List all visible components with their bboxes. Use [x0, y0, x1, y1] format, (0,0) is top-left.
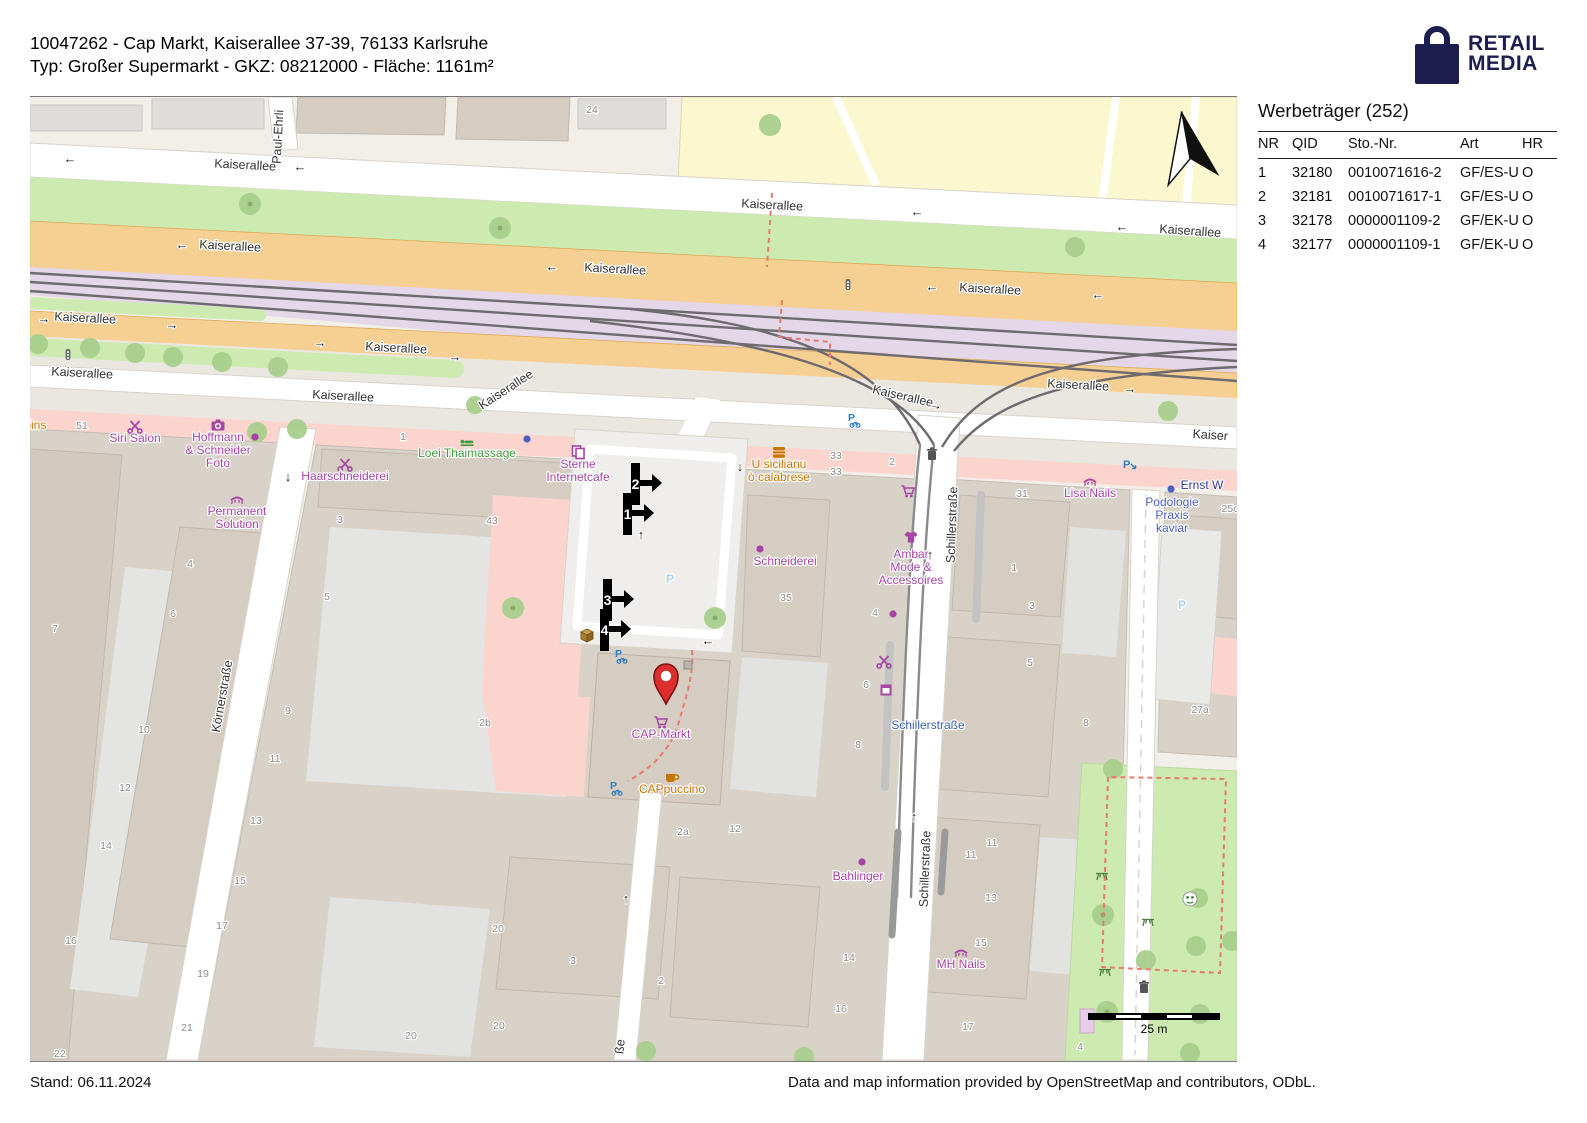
- cell-qid: 32178: [1292, 207, 1348, 231]
- direction-arrow: ←: [926, 279, 939, 294]
- house-number: 33: [830, 450, 842, 462]
- report-page: 10047262 - Cap Markt, Kaiserallee 37-39,…: [0, 0, 1587, 1123]
- cell-art: GF/ES-U: [1460, 183, 1522, 207]
- house-number: 11: [987, 837, 998, 849]
- cell-nr: 4: [1258, 231, 1292, 255]
- trash-icon: [1139, 980, 1149, 993]
- play-icon: [1183, 892, 1197, 906]
- direction-arrow: ↓: [285, 469, 292, 484]
- scale-label: 25 m: [1141, 1022, 1168, 1036]
- cell-art: GF/ES-U: [1460, 159, 1522, 184]
- house-number: 12: [729, 823, 741, 835]
- stand-date: Stand: 06.11.2024: [30, 1074, 152, 1091]
- col-hr: HR: [1522, 132, 1557, 159]
- house-number: 16: [65, 935, 77, 947]
- logo-text: RETAIL MEDIA: [1468, 34, 1545, 74]
- house-number: 17: [962, 1021, 974, 1033]
- house-number: 16: [835, 1003, 847, 1015]
- col-nr: NR: [1258, 132, 1292, 159]
- dot-icon: [523, 435, 530, 442]
- marker-number: 3: [604, 592, 612, 608]
- cell-art: GF/EK-U: [1460, 207, 1522, 231]
- panel-title: Werbeträger (252): [1258, 100, 1557, 122]
- direction-arrow: ↑: [638, 527, 645, 542]
- house-number: 24: [586, 104, 598, 116]
- table-row: 2 32181 0010071617-1 GF/ES-U O: [1258, 183, 1557, 207]
- house-number: 6: [863, 679, 869, 691]
- cell-hr: O: [1522, 183, 1557, 207]
- street-label: ße: [612, 1039, 627, 1055]
- direction-arrow: ↑: [623, 891, 630, 906]
- path-gate-marker: [684, 661, 692, 669]
- house-number: 20: [405, 1030, 417, 1042]
- direction-arrow: ←: [546, 259, 559, 274]
- house-number: 3: [337, 514, 343, 526]
- house-number: 13: [985, 892, 997, 904]
- direction-arrow: ←: [64, 151, 77, 166]
- cell-sto-nr: 0010071617-1: [1348, 183, 1460, 207]
- cell-sto-nr: 0000001109-2: [1348, 207, 1460, 231]
- direction-arrow: ↓: [737, 459, 744, 474]
- direction-arrow: →: [449, 349, 462, 364]
- dot-icon: [1167, 485, 1174, 492]
- table-row: 1 32180 0010071616-2 GF/ES-U O: [1258, 159, 1557, 184]
- signal-icon: [846, 279, 851, 290]
- house-number: 2: [658, 975, 664, 987]
- header-subtitle: Typ: Großer Supermarkt - GKZ: 08212000 -…: [30, 55, 494, 78]
- table-row: 4 32177 0000001109-1 GF/EK-U O: [1258, 231, 1557, 255]
- poi-label: MH Nails: [937, 957, 986, 971]
- house-number: 4: [1077, 1041, 1083, 1053]
- poi-label: PermanentSolution: [208, 504, 267, 531]
- house-number: 33: [830, 466, 842, 478]
- house-number: 5: [324, 591, 330, 603]
- map-container: P P: [30, 96, 1237, 1062]
- house-number: 4: [872, 607, 878, 619]
- house-number: 2a: [677, 826, 689, 838]
- table-row: 3 32178 0000001109-2 GF/EK-U O: [1258, 207, 1557, 231]
- street-label: Kaiser: [1192, 427, 1228, 443]
- poi-label: Loei Thaimassage: [418, 446, 516, 460]
- poi-label: U sicilianuò calabrese: [748, 457, 810, 484]
- direction-arrow: ←: [294, 159, 307, 174]
- sq-icon: [881, 685, 892, 696]
- house-number: 12: [119, 782, 131, 794]
- cell-hr: O: [1522, 231, 1557, 255]
- house-number: 13: [250, 815, 262, 827]
- cell-art: GF/EK-U: [1460, 231, 1522, 255]
- shopping-bag-icon: [1413, 22, 1461, 86]
- cell-nr: 2: [1258, 183, 1292, 207]
- cell-sto-nr: 0010071616-2: [1348, 159, 1460, 184]
- house-number: 1: [1011, 562, 1017, 574]
- cell-hr: O: [1522, 159, 1557, 184]
- dot-icon: [756, 545, 763, 552]
- map-canvas: P P: [30, 97, 1237, 1061]
- cell-qid: 32181: [1292, 183, 1348, 207]
- poi-label: Schillerstraße: [891, 718, 965, 732]
- house-number: 15: [234, 875, 246, 887]
- cell-qid: 32180: [1292, 159, 1348, 184]
- house-number: 11: [966, 849, 977, 861]
- map-attribution: Data and map information provided by Ope…: [788, 1074, 1316, 1091]
- page-header: 10047262 - Cap Markt, Kaiserallee 37-39,…: [30, 32, 494, 78]
- direction-arrow: ←: [702, 633, 715, 648]
- house-number: 11: [270, 753, 281, 765]
- poi-label: Siri Salon: [109, 431, 160, 445]
- marker-number: 4: [601, 622, 609, 638]
- poi-label: Bahlinger: [833, 869, 884, 883]
- house-number: 51: [76, 420, 88, 432]
- house-number: 8: [1083, 717, 1089, 729]
- werbetraeger-table: NR QID Sto.-Nr. Art HR 1 32180 001007161…: [1258, 131, 1557, 255]
- signal-icon: [66, 349, 71, 360]
- cell-qid: 32177: [1292, 231, 1348, 255]
- house-number: 14: [100, 840, 112, 852]
- cell-hr: O: [1522, 207, 1557, 231]
- col-qid: QID: [1292, 132, 1348, 159]
- house-number: 43: [486, 515, 498, 527]
- house-number: 15: [975, 937, 987, 949]
- street-label: Paul-Ehrli: [270, 109, 287, 164]
- poi-label: CAP-Markt: [632, 727, 691, 741]
- direction-arrow: ←: [911, 204, 924, 219]
- street-label: Schillerstraße: [917, 830, 934, 907]
- table-header-row: NR QID Sto.-Nr. Art HR: [1258, 132, 1557, 159]
- house-number: 1: [400, 431, 406, 443]
- poi-label: Schneiderei: [753, 554, 816, 568]
- werbetraeger-panel: Werbeträger (252) NR QID Sto.-Nr. Art HR…: [1258, 100, 1557, 255]
- poi-label: P: [666, 572, 674, 586]
- house-number: 2b: [479, 717, 491, 729]
- direction-arrow: →: [166, 317, 179, 332]
- col-sto-nr: Sto.-Nr.: [1348, 132, 1460, 159]
- marker-number: 1: [624, 506, 632, 522]
- house-number: 8: [855, 739, 861, 751]
- house-number: 4: [187, 558, 193, 570]
- house-number: 27a: [1191, 704, 1209, 716]
- poi-label: Haarschneiderei: [301, 469, 388, 483]
- house-number: 9: [285, 705, 291, 717]
- house-number: 19: [197, 968, 209, 980]
- house-number: 21: [181, 1022, 193, 1034]
- direction-arrow: →: [38, 311, 51, 326]
- house-number: 2: [889, 456, 895, 468]
- cell-sto-nr: 0000001109-1: [1348, 231, 1460, 255]
- direction-arrow: →: [1124, 381, 1137, 396]
- house-number: 3: [1029, 600, 1035, 612]
- house-number: 7: [52, 623, 58, 635]
- col-art: Art: [1460, 132, 1522, 159]
- box-icon: [581, 629, 593, 642]
- header-title: 10047262 - Cap Markt, Kaiserallee 37-39,…: [30, 32, 494, 55]
- house-number: 31: [1016, 488, 1028, 500]
- house-number: 3: [570, 955, 576, 967]
- house-number: 17: [216, 920, 228, 932]
- marker-number: 2: [632, 476, 640, 492]
- house-number: 22: [54, 1048, 66, 1060]
- cell-nr: 1: [1258, 159, 1292, 184]
- house-number: 25c: [1222, 503, 1237, 515]
- house-number: 5: [1027, 657, 1033, 669]
- street-label: Schillerstraße: [944, 486, 961, 563]
- dot-icon: [889, 610, 896, 617]
- cell-nr: 3: [1258, 207, 1292, 231]
- poi-label: CAPpuccino: [639, 782, 705, 796]
- house-number: 20: [492, 923, 504, 935]
- poi-label: ppins: [30, 418, 46, 432]
- house-number: 6: [170, 608, 176, 620]
- direction-arrow: ←: [1092, 287, 1105, 302]
- retail-media-logo: RETAIL MEDIA: [1413, 22, 1545, 86]
- direction-arrow: ←: [1116, 219, 1129, 234]
- poi-label: P: [1178, 598, 1186, 612]
- dot-icon: [858, 858, 865, 865]
- house-number: 20: [493, 1020, 505, 1032]
- house-number: 10: [138, 724, 150, 736]
- direction-arrow: ↑: [911, 809, 918, 824]
- dot-icon: [251, 433, 258, 440]
- direction-arrow: ←: [176, 237, 189, 252]
- direction-arrow: →: [314, 335, 327, 350]
- trash-icon: [927, 447, 937, 460]
- poi-label: Ernst W: [1181, 478, 1224, 492]
- house-number: 35: [780, 592, 792, 604]
- house-number: 14: [843, 952, 855, 964]
- poi-label: Lisa Nails: [1064, 486, 1116, 500]
